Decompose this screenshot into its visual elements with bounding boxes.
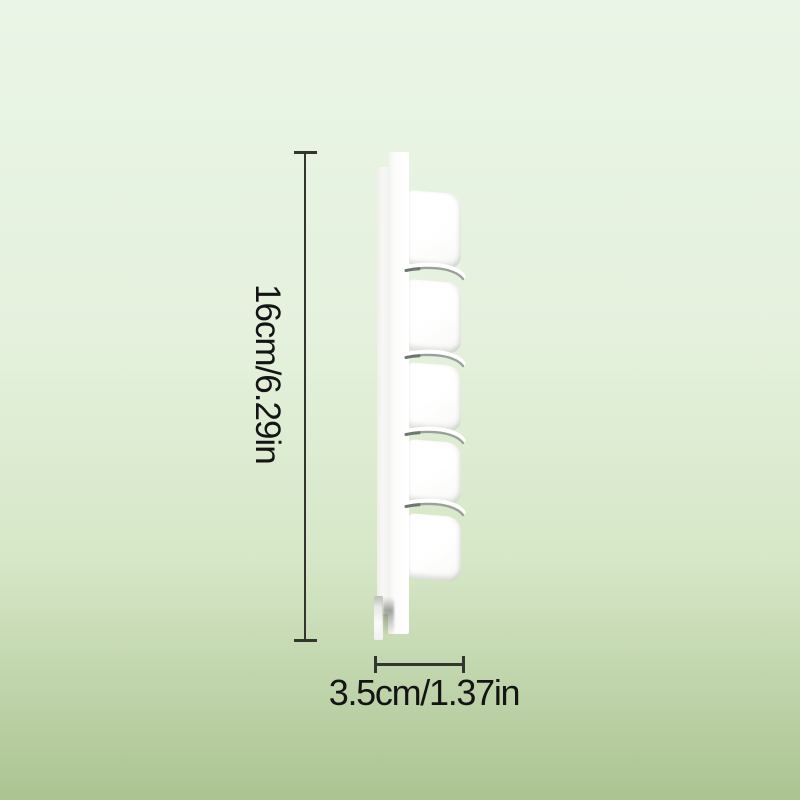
- product-hook-pocket-4: [408, 439, 461, 505]
- product-hook-pocket-1: [408, 190, 461, 269]
- product-front-plate: [388, 152, 409, 634]
- depth-dimension-cap-right: [462, 656, 465, 673]
- product-side-view: [374, 150, 470, 645]
- product-hook-wire: [405, 498, 465, 516]
- product-hook-pocket-5: [408, 513, 461, 582]
- product-hook-pocket-3: [408, 362, 461, 432]
- height-dimension-cap-top: [294, 151, 317, 154]
- height-dimension-line: [304, 152, 306, 641]
- product-dimension-diagram: 16cm/6.29in: [0, 0, 800, 800]
- product-hook-pocket-2: [408, 279, 461, 354]
- product-bottom-tab: [374, 596, 383, 640]
- height-dimension-cap-bottom: [294, 639, 317, 642]
- product-hook-wire: [405, 349, 465, 367]
- height-dimension-label: 16cm/6.29in: [246, 284, 288, 464]
- depth-dimension-line: [376, 663, 464, 666]
- product-bottom-shadow: [383, 597, 394, 635]
- product-hook-wire: [405, 262, 465, 280]
- product-hook-wire: [405, 426, 465, 444]
- depth-dimension-label: 3.5cm/1.37in: [319, 672, 529, 714]
- depth-dimension-cap-left: [374, 656, 377, 673]
